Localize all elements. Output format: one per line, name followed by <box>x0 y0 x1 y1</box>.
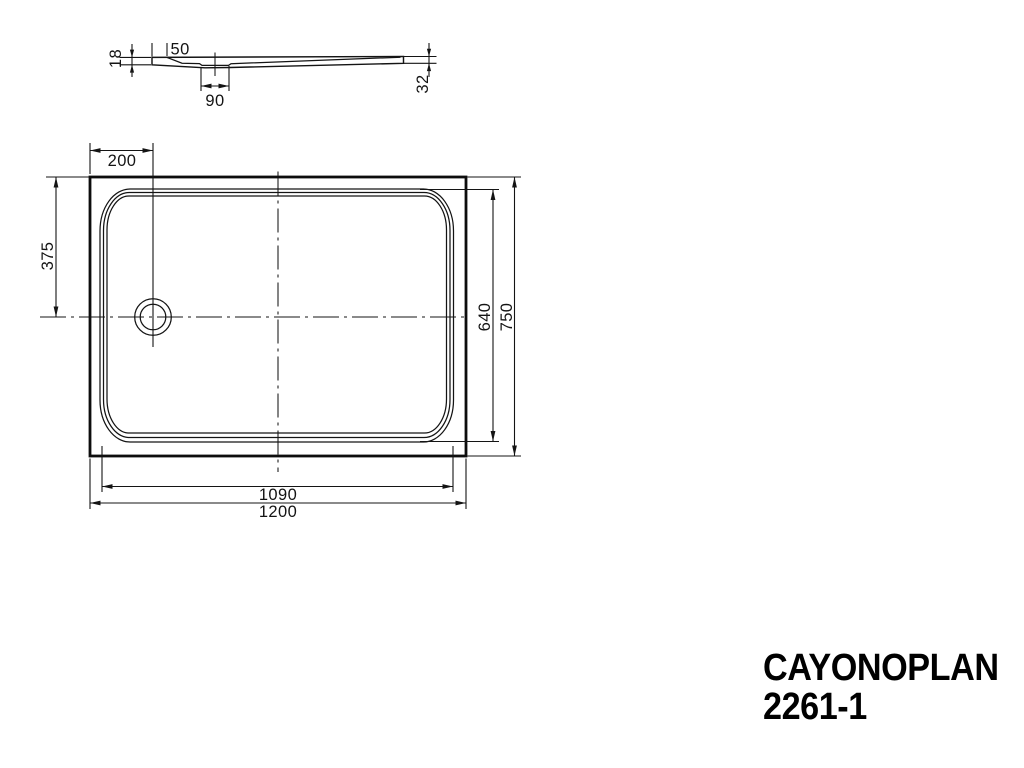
product-title: CAYONOPLAN <box>763 649 999 688</box>
title-block: CAYONOPLAN 2261-1 <box>763 649 999 727</box>
dimension-label: 1090 <box>259 486 297 504</box>
dimension-label: 1200 <box>259 503 297 521</box>
dimension-label: 375 <box>39 242 57 271</box>
plan-view: 200 375 640 750 <box>39 143 521 521</box>
dimension-drain-offset-x: 200 <box>90 143 153 174</box>
drawing-page: 18 50 90 32 <box>0 0 1024 768</box>
dimension-label: 750 <box>498 303 516 332</box>
arrowhead <box>130 65 134 73</box>
dimension-label: 50 <box>171 41 190 59</box>
dimension-label: 32 <box>414 74 432 93</box>
dimension-label: 90 <box>205 92 224 110</box>
arrowhead <box>427 49 431 57</box>
dimension-rim-width: 50 <box>152 41 190 59</box>
dimension-label: 200 <box>108 152 137 170</box>
dimension-drain-offset-y: 375 <box>39 177 89 317</box>
arrowhead <box>427 63 431 71</box>
dimension-label: 640 <box>476 303 494 332</box>
dimension-rim-height: 18 <box>107 44 151 77</box>
model-number: 2261-1 <box>763 688 999 727</box>
section-view: 18 50 90 32 <box>107 41 437 111</box>
dimension-label: 18 <box>107 49 125 68</box>
arrowhead <box>130 50 134 58</box>
dimension-edge-height: 32 <box>404 43 437 94</box>
